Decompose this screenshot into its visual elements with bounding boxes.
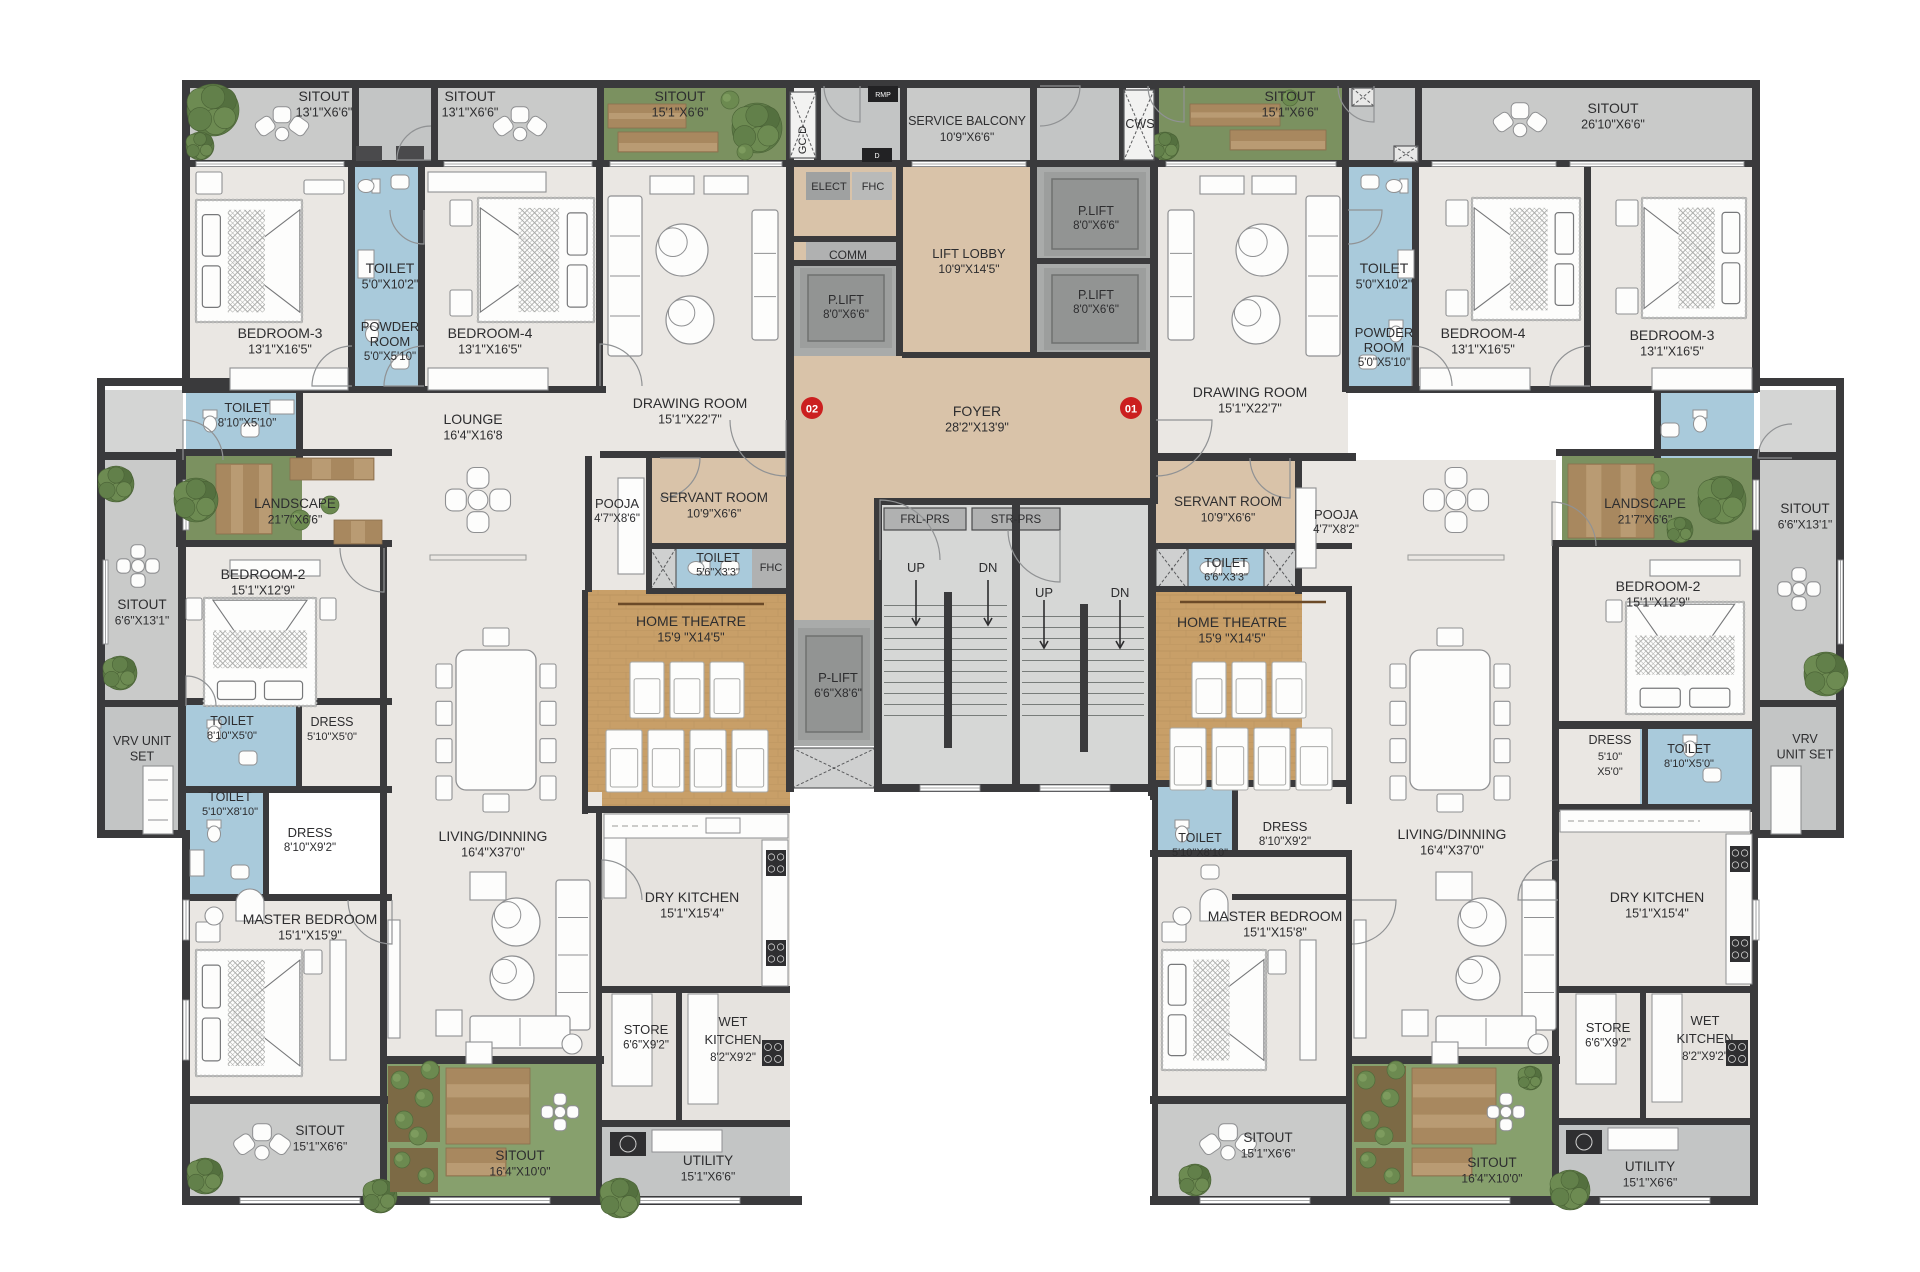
svg-text:8'10"X5'0": 8'10"X5'0" — [1664, 758, 1714, 770]
svg-text:15'1"X12'9": 15'1"X12'9" — [1626, 596, 1690, 610]
svg-text:8'10"X9'2": 8'10"X9'2" — [1259, 836, 1311, 848]
svg-text:DRAWING ROOM: DRAWING ROOM — [633, 395, 748, 411]
svg-text:BEDROOM-4: BEDROOM-4 — [448, 325, 533, 341]
svg-text:SITOUT: SITOUT — [1587, 100, 1639, 116]
svg-text:15'1"X22'7": 15'1"X22'7" — [1218, 402, 1282, 416]
svg-text:8'2"X9'2": 8'2"X9'2" — [710, 1052, 756, 1064]
svg-text:SITOUT: SITOUT — [295, 1123, 344, 1138]
svg-text:BEDROOM-2: BEDROOM-2 — [221, 566, 306, 582]
svg-text:6'6"X9'2": 6'6"X9'2" — [1585, 1038, 1631, 1050]
svg-text:5'10": 5'10" — [1598, 751, 1622, 763]
svg-text:STORE: STORE — [624, 1022, 669, 1037]
svg-text:DRESS: DRESS — [288, 825, 333, 840]
svg-text:16'4"X16'8: 16'4"X16'8 — [443, 429, 502, 443]
svg-text:13'1"X16'5": 13'1"X16'5" — [1451, 343, 1515, 357]
svg-text:SITOUT: SITOUT — [1780, 501, 1829, 516]
svg-text:02: 02 — [806, 404, 818, 416]
svg-text:COMM: COMM — [829, 248, 867, 262]
svg-text:15'1"X15'4": 15'1"X15'4" — [1625, 907, 1689, 921]
svg-text:6'6"X8'6": 6'6"X8'6" — [814, 686, 862, 700]
svg-text:15'1"X6'6": 15'1"X6'6" — [1241, 1147, 1295, 1161]
svg-text:8'10"X5'0": 8'10"X5'0" — [207, 730, 257, 742]
svg-text:5'0"X10'2": 5'0"X10'2" — [362, 278, 419, 292]
svg-text:16'4"X10'0": 16'4"X10'0" — [1461, 1172, 1522, 1186]
svg-text:15'1"X6'6": 15'1"X6'6" — [1262, 106, 1319, 120]
svg-text:8'0"X6'6": 8'0"X6'6" — [1073, 220, 1119, 232]
svg-text:FHC: FHC — [760, 562, 783, 574]
svg-text:LOUNGE: LOUNGE — [443, 411, 502, 427]
svg-text:4'7"X8'6": 4'7"X8'6" — [594, 513, 640, 525]
svg-text:TOILET: TOILET — [1178, 831, 1222, 845]
svg-text:P.LIFT: P.LIFT — [828, 293, 864, 307]
svg-text:15'1"X15'9": 15'1"X15'9" — [278, 929, 342, 943]
svg-text:HOME THEATRE: HOME THEATRE — [1177, 614, 1287, 630]
svg-text:5'10"X8'10": 5'10"X8'10" — [1172, 847, 1228, 859]
svg-text:SITOUT: SITOUT — [1264, 88, 1316, 104]
svg-text:SITOUT: SITOUT — [117, 597, 166, 612]
svg-text:TOILET: TOILET — [224, 400, 269, 415]
svg-text:SITOUT: SITOUT — [495, 1148, 544, 1163]
svg-text:8'10"X5'10": 8'10"X5'10" — [218, 418, 277, 430]
svg-text:SITOUT: SITOUT — [654, 88, 706, 104]
svg-text:LANDSCAPE: LANDSCAPE — [254, 496, 336, 511]
svg-text:UNIT SET: UNIT SET — [1777, 748, 1834, 762]
svg-text:RMP: RMP — [875, 92, 891, 99]
svg-text:13'1"X16'5": 13'1"X16'5" — [248, 343, 312, 357]
svg-text:8'10"X9'2": 8'10"X9'2" — [284, 842, 336, 854]
svg-text:15'1"X15'8": 15'1"X15'8" — [1243, 926, 1307, 940]
svg-text:TOILET: TOILET — [366, 260, 415, 276]
svg-text:MASTER BEDROOM: MASTER BEDROOM — [1208, 908, 1343, 924]
svg-text:LIFT LOBBY: LIFT LOBBY — [932, 246, 1006, 261]
svg-text:BEDROOM-4: BEDROOM-4 — [1441, 325, 1526, 341]
svg-text:HOME THEATRE: HOME THEATRE — [636, 613, 746, 629]
svg-text:X5'0": X5'0" — [1597, 766, 1623, 778]
svg-text:TOILET: TOILET — [1360, 260, 1409, 276]
svg-text:8'0"X6'6": 8'0"X6'6" — [1073, 304, 1119, 316]
svg-text:DRY KITCHEN: DRY KITCHEN — [645, 889, 739, 905]
svg-text:6'6"X13'1": 6'6"X13'1" — [115, 614, 169, 628]
svg-text:TOILET: TOILET — [696, 551, 740, 565]
svg-text:5'0"X10'2": 5'0"X10'2" — [1356, 278, 1413, 292]
svg-text:FOYER: FOYER — [953, 403, 1001, 419]
svg-text:STR-PRS: STR-PRS — [991, 514, 1042, 526]
svg-text:STORE: STORE — [1586, 1020, 1631, 1035]
svg-text:DRAWING ROOM: DRAWING ROOM — [1193, 384, 1308, 400]
svg-text:15'1"X22'7": 15'1"X22'7" — [658, 413, 722, 427]
svg-text:TOILET: TOILET — [208, 790, 252, 804]
svg-text:DRESS: DRESS — [1263, 819, 1308, 834]
svg-text:ELECT: ELECT — [811, 181, 847, 193]
svg-text:13'1"X6'6": 13'1"X6'6" — [442, 106, 499, 120]
svg-text:SITOUT: SITOUT — [444, 88, 496, 104]
svg-text:POWDER: POWDER — [361, 319, 420, 334]
svg-text:6'6"X9'2": 6'6"X9'2" — [623, 1040, 669, 1052]
svg-text:LIVING/DINNING: LIVING/DINNING — [439, 828, 548, 844]
svg-text:SITOUT: SITOUT — [298, 88, 350, 104]
svg-text:BEDROOM-2: BEDROOM-2 — [1616, 578, 1701, 594]
svg-text:BEDROOM-3: BEDROOM-3 — [238, 325, 323, 341]
svg-text:6'6"X13'1": 6'6"X13'1" — [1778, 518, 1832, 532]
svg-text:16'4"X37'0": 16'4"X37'0" — [1420, 844, 1484, 858]
svg-text:01: 01 — [1125, 404, 1137, 416]
svg-text:21'7"X6'6": 21'7"X6'6" — [268, 513, 322, 527]
svg-text:LANDSCAPE: LANDSCAPE — [1604, 496, 1686, 511]
svg-text:15'9 "X14'5": 15'9 "X14'5" — [657, 631, 724, 645]
svg-text:P.LIFT: P.LIFT — [1078, 204, 1114, 218]
svg-text:P.LIFT: P.LIFT — [1078, 288, 1114, 302]
svg-text:UTILITY: UTILITY — [683, 1153, 733, 1168]
svg-text:WET: WET — [1691, 1013, 1720, 1028]
svg-text:UP: UP — [1035, 585, 1053, 600]
svg-text:CWS: CWS — [1125, 117, 1154, 131]
svg-text:13'1"X16'5": 13'1"X16'5" — [458, 343, 522, 357]
svg-text:SERVANT ROOM: SERVANT ROOM — [1174, 494, 1282, 509]
svg-text:DRESS: DRESS — [310, 715, 353, 729]
svg-text:15'1"X6'6": 15'1"X6'6" — [681, 1170, 735, 1184]
svg-text:16'4"X37'0": 16'4"X37'0" — [461, 846, 525, 860]
svg-text:UP: UP — [907, 560, 925, 575]
svg-text:D: D — [874, 153, 879, 160]
svg-text:13'1"X6'6": 13'1"X6'6" — [296, 106, 353, 120]
svg-text:21'7"X6'6": 21'7"X6'6" — [1618, 513, 1672, 527]
svg-text:8'0"X6'6": 8'0"X6'6" — [823, 309, 869, 321]
svg-text:MASTER BEDROOM: MASTER BEDROOM — [243, 911, 378, 927]
svg-text:15'1"X6'6": 15'1"X6'6" — [293, 1140, 347, 1154]
svg-text:FRL-PRS: FRL-PRS — [900, 514, 950, 526]
svg-text:10'9"X14'5": 10'9"X14'5" — [938, 262, 999, 276]
svg-text:5'10"X8'10": 5'10"X8'10" — [202, 806, 258, 818]
svg-text:16'4"X10'0": 16'4"X10'0" — [489, 1165, 550, 1179]
svg-text:LIVING/DINNING: LIVING/DINNING — [1398, 826, 1507, 842]
svg-text:DRY KITCHEN: DRY KITCHEN — [1610, 889, 1704, 905]
svg-text:15'1"X6'6": 15'1"X6'6" — [1623, 1176, 1677, 1190]
svg-text:FHC: FHC — [862, 181, 885, 193]
svg-text:DN: DN — [979, 560, 998, 575]
svg-text:POWDER: POWDER — [1355, 325, 1414, 340]
svg-text:8'2"X9'2": 8'2"X9'2" — [1682, 1051, 1728, 1063]
svg-text:SITOUT: SITOUT — [1243, 1130, 1292, 1145]
svg-text:DRESS: DRESS — [1588, 733, 1631, 747]
svg-text:28'2"X13'9": 28'2"X13'9" — [945, 421, 1009, 435]
svg-text:POOJA: POOJA — [1314, 507, 1358, 522]
svg-text:15'1"X12'9": 15'1"X12'9" — [231, 584, 295, 598]
svg-text:15'1"X15'4": 15'1"X15'4" — [660, 907, 724, 921]
svg-text:ROOM: ROOM — [1364, 340, 1404, 355]
svg-text:TOILET: TOILET — [210, 714, 254, 728]
svg-text:6'6"X3'3": 6'6"X3'3" — [1204, 572, 1248, 584]
svg-text:10'9"X6'6": 10'9"X6'6" — [940, 130, 994, 144]
svg-text:5'10"X5'0": 5'10"X5'0" — [307, 731, 357, 743]
svg-text:SERVICE BALCONY: SERVICE BALCONY — [908, 114, 1027, 128]
svg-text:13'1"X16'5": 13'1"X16'5" — [1640, 345, 1704, 359]
svg-text:DN: DN — [1111, 585, 1130, 600]
svg-text:WET: WET — [719, 1014, 748, 1029]
svg-text:TOILET: TOILET — [1667, 742, 1711, 756]
svg-text:GC-D: GC-D — [797, 126, 809, 154]
svg-text:VRV UNIT: VRV UNIT — [113, 734, 171, 748]
svg-text:15'1"X6'6": 15'1"X6'6" — [652, 106, 709, 120]
svg-text:SITOUT: SITOUT — [1467, 1155, 1516, 1170]
svg-text:15'9 "X14'5": 15'9 "X14'5" — [1198, 632, 1265, 646]
svg-text:5'6"X3'3": 5'6"X3'3" — [696, 567, 740, 579]
svg-text:5'0"X5'10": 5'0"X5'10" — [1358, 357, 1410, 369]
svg-text:SET: SET — [130, 750, 155, 764]
svg-text:VRV: VRV — [1792, 732, 1818, 746]
svg-text:UTILITY: UTILITY — [1625, 1159, 1675, 1174]
svg-text:SERVANT ROOM: SERVANT ROOM — [660, 490, 768, 505]
svg-text:KITCHEN: KITCHEN — [704, 1032, 761, 1047]
svg-text:TOILET: TOILET — [1204, 556, 1248, 570]
svg-text:10'9"X6'6": 10'9"X6'6" — [687, 507, 741, 521]
svg-text:BEDROOM-3: BEDROOM-3 — [1630, 327, 1715, 343]
svg-text:P-LIFT: P-LIFT — [818, 670, 858, 685]
svg-text:5'0"X5'10": 5'0"X5'10" — [364, 351, 416, 363]
svg-text:26'10"X6'6": 26'10"X6'6" — [1581, 118, 1645, 132]
svg-text:10'9"X6'6": 10'9"X6'6" — [1201, 511, 1255, 525]
svg-text:KITCHEN: KITCHEN — [1676, 1031, 1733, 1046]
svg-text:4'7"X8'2": 4'7"X8'2" — [1313, 524, 1359, 536]
svg-text:ROOM: ROOM — [370, 334, 410, 349]
svg-text:POOJA: POOJA — [595, 496, 639, 511]
